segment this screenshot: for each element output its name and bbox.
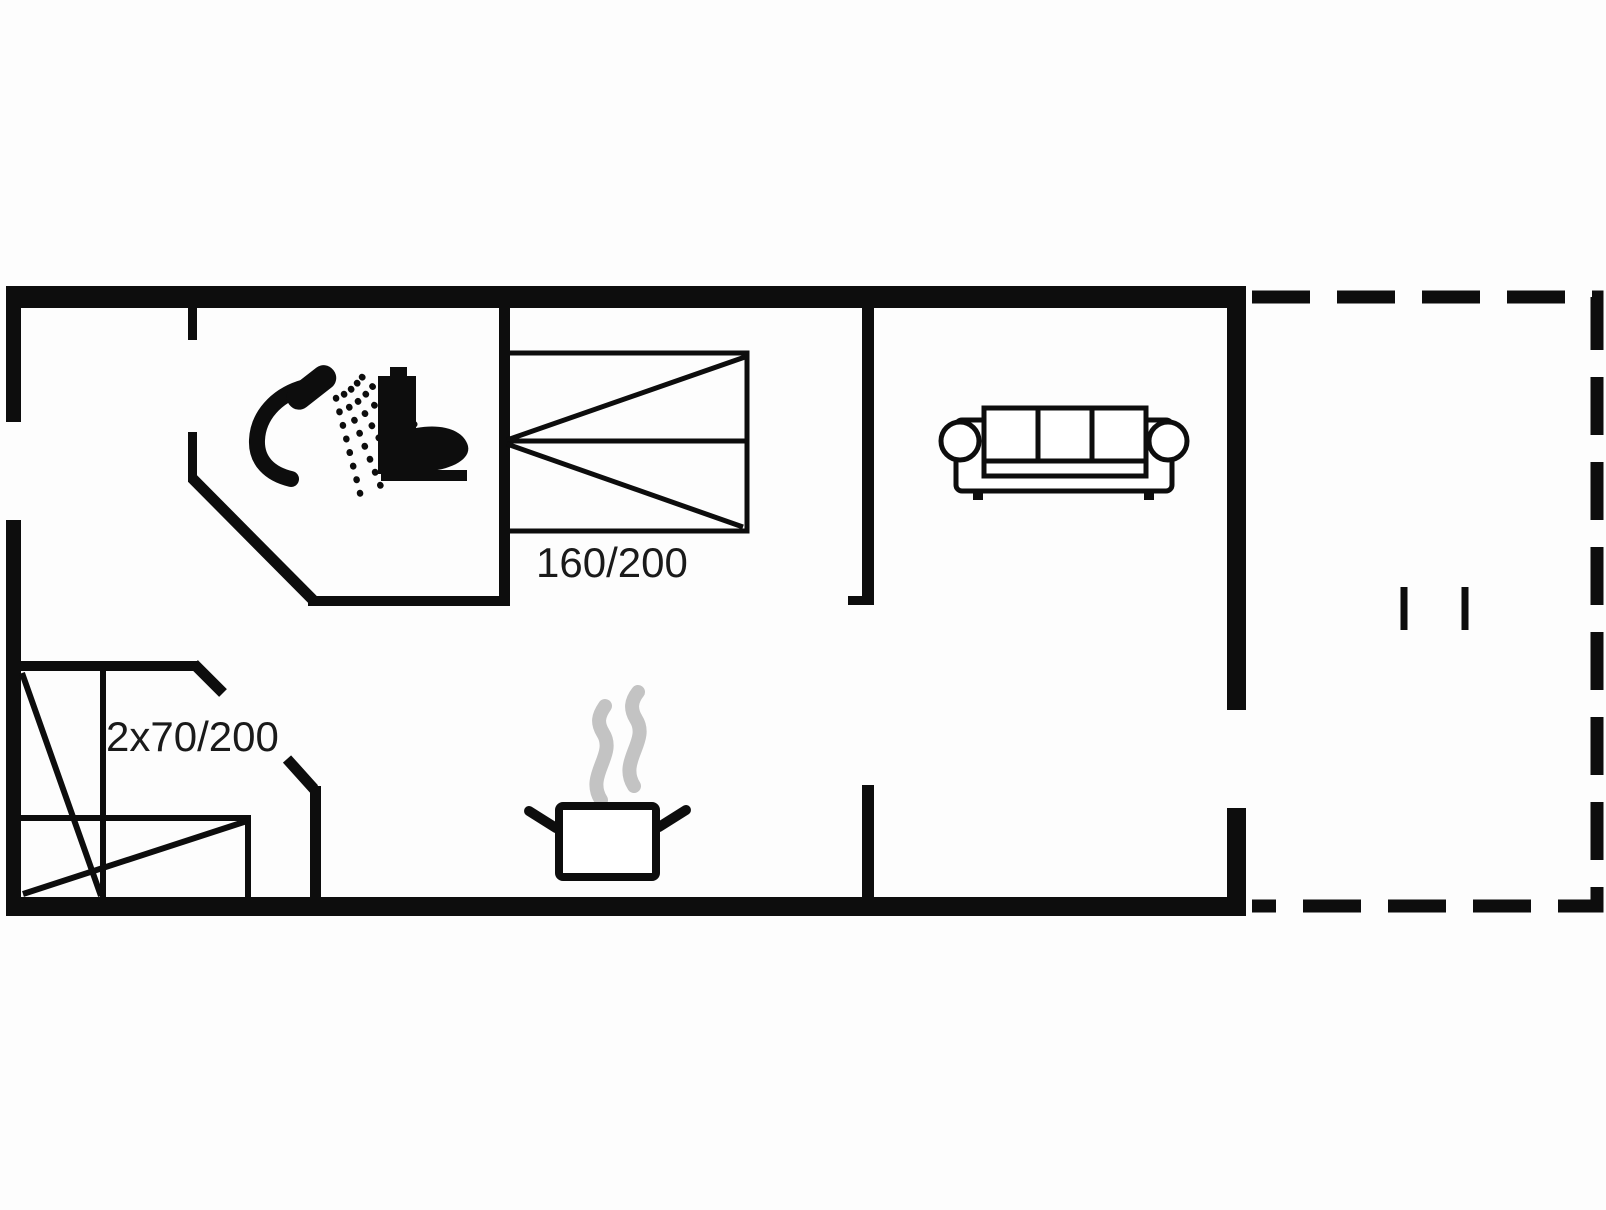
bottom-wall — [6, 897, 1246, 916]
bunkroom-wall-top — [21, 661, 197, 671]
toilet-tank — [378, 376, 416, 474]
pot-body — [559, 806, 656, 877]
sofa-seat-band — [984, 461, 1146, 476]
double-bed-label: 160/200 — [536, 539, 688, 586]
right-wall-upper — [1227, 286, 1246, 710]
sofa-armrest-left — [941, 422, 979, 460]
toilet-base — [381, 470, 467, 481]
bathroom-wall-bottom — [308, 596, 510, 606]
floor-plan-page: 160/200 2x70/200 — [0, 0, 1606, 1205]
plan-background — [0, 0, 1606, 1205]
sofa-icon — [941, 408, 1187, 500]
left-wall-upper — [6, 286, 21, 422]
living-wall-lower — [862, 785, 874, 916]
living-wall-foot — [848, 596, 864, 605]
bathroom-wall-stub — [188, 305, 197, 340]
corridor-wall — [310, 786, 321, 916]
sofa-armrest-right — [1149, 422, 1187, 460]
right-wall-lower — [1227, 808, 1246, 916]
living-wall-upper — [862, 305, 874, 605]
bunk-beds-label: 2x70/200 — [106, 713, 279, 760]
left-wall-lower — [6, 520, 21, 916]
sofa-backrest — [984, 408, 1146, 461]
floor-plan: 160/200 2x70/200 — [0, 0, 1606, 1205]
top-wall — [6, 286, 1246, 308]
